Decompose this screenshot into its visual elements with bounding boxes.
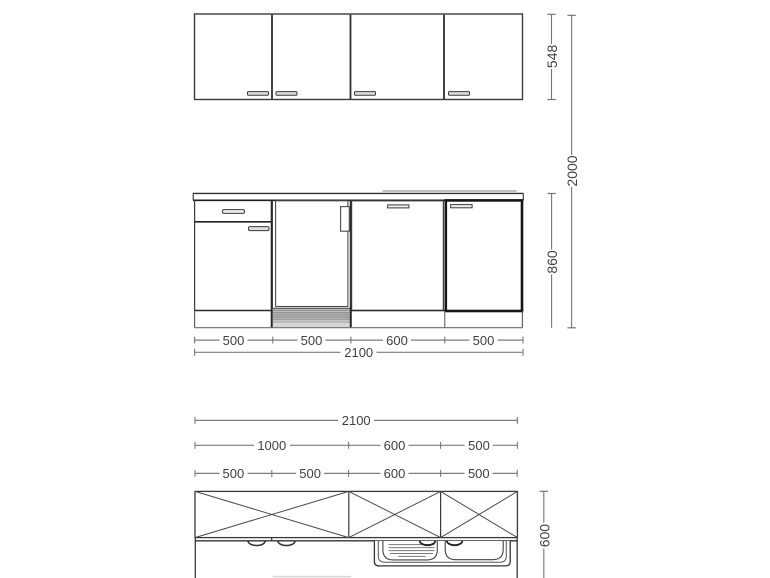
svg-text:500: 500 [301,333,323,348]
svg-text:2100: 2100 [344,345,373,360]
svg-text:500: 500 [223,333,245,348]
svg-text:600: 600 [386,333,408,348]
svg-text:1000: 1000 [257,438,286,453]
svg-text:600: 600 [384,438,406,453]
svg-text:500: 500 [468,438,490,453]
svg-text:500: 500 [299,466,321,481]
svg-text:548: 548 [544,45,560,69]
svg-text:600: 600 [384,466,406,481]
svg-text:600: 600 [536,524,552,548]
svg-text:500: 500 [223,466,245,481]
svg-text:500: 500 [473,333,495,348]
svg-text:2100: 2100 [342,413,371,428]
svg-text:2000: 2000 [564,155,580,186]
svg-text:860: 860 [544,250,560,274]
svg-text:500: 500 [468,466,490,481]
